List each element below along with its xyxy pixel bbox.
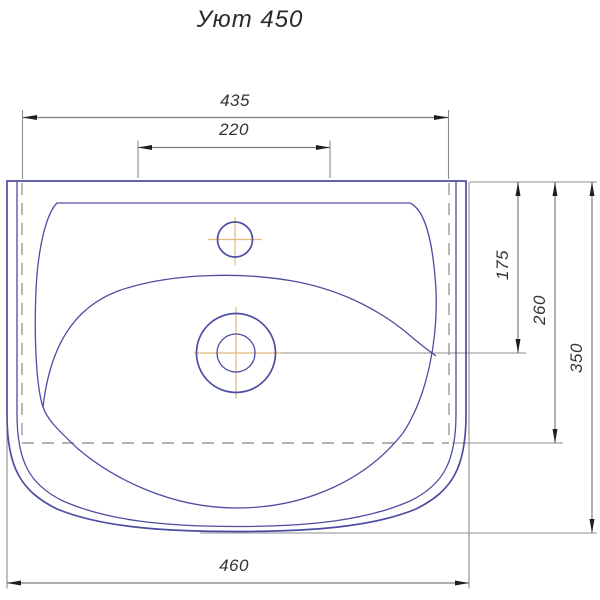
dim-label-175: 175 — [493, 250, 513, 280]
bowl-deck-curve — [43, 275, 436, 407]
dimension-260 — [553, 182, 558, 443]
washbasin-technical-drawing — [0, 0, 600, 600]
dimension-lines — [7, 115, 595, 586]
drawing-canvas: Уют 450 435 220 460 175 260 350 — [0, 0, 600, 600]
dimension-175 — [516, 182, 521, 353]
dimension-350 — [590, 182, 595, 533]
dimension-220 — [138, 145, 330, 150]
drawing-title: Уют 450 — [197, 6, 304, 34]
faucet-hole — [208, 217, 262, 265]
dim-label-460: 460 — [219, 556, 249, 576]
dim-label-350: 350 — [567, 343, 587, 373]
dim-label-220: 220 — [219, 120, 249, 140]
dim-label-260: 260 — [530, 295, 550, 325]
dimension-460 — [7, 581, 469, 586]
drain-hole — [194, 307, 281, 399]
dim-label-435: 435 — [220, 91, 250, 111]
